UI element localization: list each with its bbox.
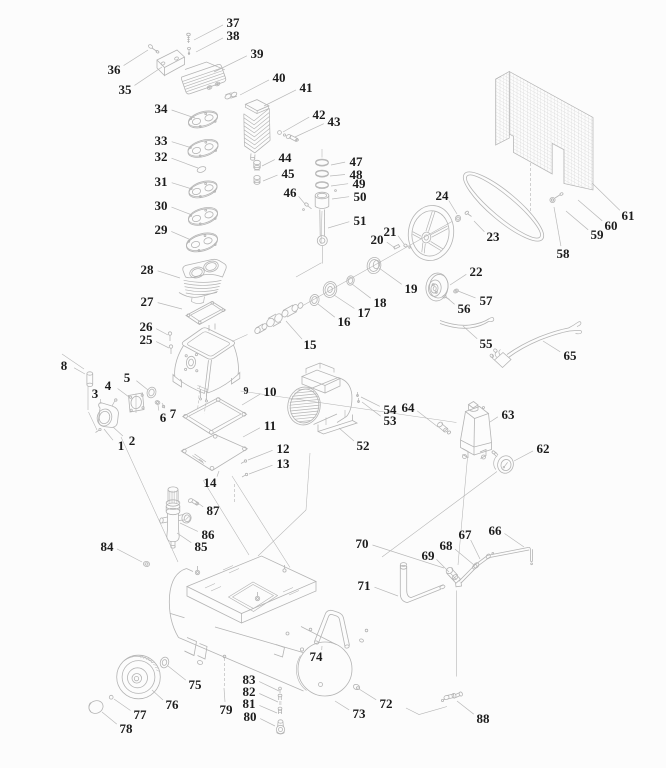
svg-text:38: 38: [227, 28, 241, 43]
svg-text:64: 64: [402, 400, 416, 415]
svg-text:34: 34: [155, 101, 169, 116]
svg-text:29: 29: [155, 222, 169, 237]
svg-text:35: 35: [119, 82, 133, 97]
svg-text:9: 9: [244, 386, 249, 397]
svg-text:22: 22: [470, 264, 483, 279]
svg-text:78: 78: [120, 721, 134, 736]
svg-text:62: 62: [537, 441, 550, 456]
svg-text:21: 21: [384, 224, 397, 239]
svg-text:77: 77: [134, 707, 148, 722]
svg-text:6: 6: [160, 410, 167, 425]
svg-text:28: 28: [141, 262, 155, 277]
svg-text:7: 7: [170, 406, 177, 421]
svg-text:43: 43: [328, 114, 342, 129]
svg-text:3: 3: [92, 386, 99, 401]
svg-text:70: 70: [356, 536, 369, 551]
svg-text:52: 52: [357, 438, 370, 453]
svg-text:58: 58: [557, 246, 571, 261]
svg-text:31: 31: [155, 174, 168, 189]
svg-text:76: 76: [166, 697, 180, 712]
svg-text:13: 13: [277, 456, 291, 471]
svg-text:17: 17: [358, 305, 372, 320]
svg-text:67: 67: [459, 527, 473, 542]
svg-text:27: 27: [141, 294, 155, 309]
svg-text:56: 56: [458, 301, 472, 316]
svg-text:60: 60: [605, 218, 618, 233]
svg-text:74: 74: [310, 649, 324, 664]
svg-text:16: 16: [338, 314, 352, 329]
svg-text:63: 63: [502, 407, 516, 422]
svg-text:72: 72: [380, 696, 393, 711]
svg-text:66: 66: [489, 523, 503, 538]
svg-text:2: 2: [129, 433, 136, 448]
svg-text:61: 61: [622, 208, 635, 223]
svg-text:40: 40: [273, 70, 286, 85]
svg-text:12: 12: [277, 441, 290, 456]
svg-text:1: 1: [118, 438, 125, 453]
svg-text:80: 80: [244, 709, 257, 724]
svg-text:41: 41: [300, 80, 313, 95]
svg-text:55: 55: [480, 336, 494, 351]
svg-text:25: 25: [140, 332, 154, 347]
svg-text:88: 88: [477, 711, 491, 726]
svg-text:51: 51: [354, 213, 367, 228]
svg-text:46: 46: [284, 185, 298, 200]
svg-text:59: 59: [591, 227, 605, 242]
svg-text:24: 24: [436, 188, 450, 203]
svg-text:32: 32: [155, 149, 168, 164]
svg-text:86: 86: [202, 527, 216, 542]
svg-text:18: 18: [374, 295, 388, 310]
svg-text:15: 15: [304, 337, 318, 352]
svg-text:68: 68: [440, 538, 454, 553]
svg-text:71: 71: [358, 578, 371, 593]
svg-text:11: 11: [264, 418, 276, 433]
svg-text:23: 23: [487, 229, 501, 244]
svg-text:4: 4: [105, 378, 112, 393]
svg-text:30: 30: [155, 198, 168, 213]
svg-text:84: 84: [101, 539, 115, 554]
svg-text:50: 50: [354, 189, 367, 204]
svg-text:79: 79: [220, 702, 234, 717]
svg-text:44: 44: [279, 150, 293, 165]
svg-text:69: 69: [422, 548, 436, 563]
svg-text:65: 65: [564, 348, 578, 363]
svg-text:57: 57: [480, 293, 494, 308]
svg-text:20: 20: [371, 232, 384, 247]
svg-text:75: 75: [189, 677, 203, 692]
svg-text:8: 8: [61, 358, 68, 373]
svg-text:5: 5: [124, 370, 131, 385]
svg-text:54: 54: [384, 402, 398, 417]
svg-text:33: 33: [155, 133, 169, 148]
svg-text:87: 87: [207, 503, 221, 518]
svg-text:10: 10: [264, 384, 277, 399]
svg-text:26: 26: [140, 319, 154, 334]
svg-text:39: 39: [251, 46, 265, 61]
svg-text:14: 14: [204, 475, 218, 490]
svg-text:45: 45: [282, 166, 296, 181]
svg-text:73: 73: [353, 706, 367, 721]
svg-text:19: 19: [405, 281, 419, 296]
svg-text:42: 42: [313, 107, 326, 122]
svg-text:83: 83: [243, 672, 257, 687]
svg-text:36: 36: [108, 62, 122, 77]
